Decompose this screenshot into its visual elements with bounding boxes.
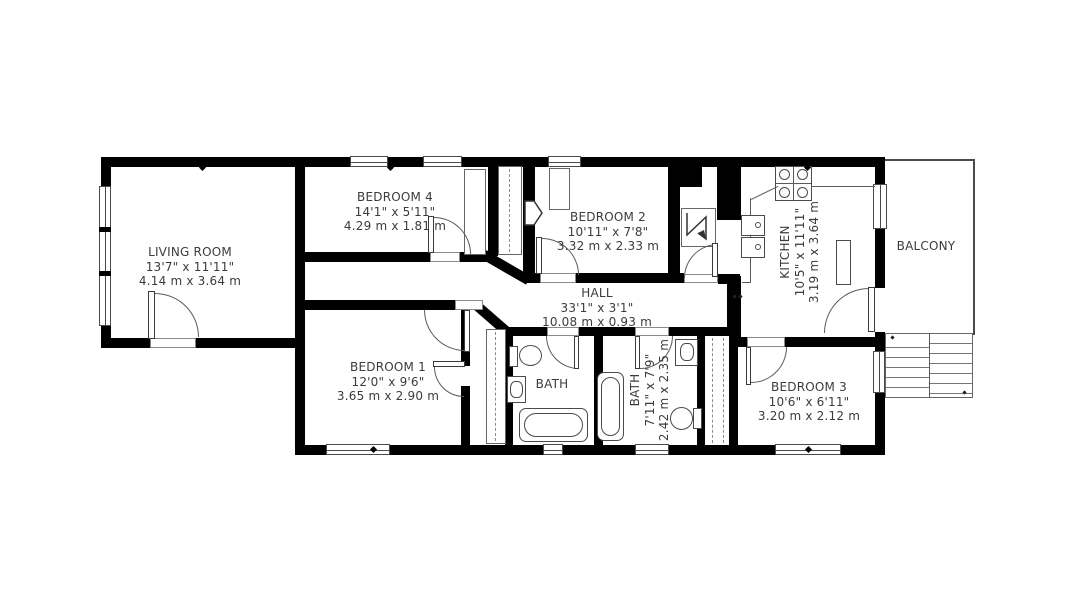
wall-segment [784,337,885,347]
window [548,156,581,167]
room-name: KITCHEN [778,197,793,307]
room-dims-metric: 3.65 m x 2.90 m [308,389,468,404]
room-dims-imperial: 12'0" x 9'6" [308,375,468,390]
room-label-kitchen: KITCHEN 10'5" x 11'11" 3.19 m x 3.64 m [778,197,824,307]
room-name: BALCONY [876,239,976,254]
room-label-hall: HALL 33'1" x 3'1" 10.08 m x 0.93 m [517,286,677,330]
room-dims-metric: 10.08 m x 0.93 m [517,315,677,330]
counter-edge [742,282,751,283]
door-opening [875,288,885,332]
door-leaf [868,287,875,332]
door-arc [751,347,787,383]
wall-segment [295,252,432,262]
window [350,156,388,167]
door-arc [155,293,199,337]
wall-segment [717,162,741,220]
room-dims-imperial: 13'7" x 11'11" [110,260,270,275]
stove-grid [776,183,811,184]
room-dims-imperial: 7'11" x 7'9" [643,335,658,445]
room-dims-imperial: 14'1" x 5'11" [315,205,475,220]
room-dims-imperial: 33'1" x 3'1" [517,301,677,316]
bathtub-basin [601,377,620,436]
kitchen-sink-fixture [741,215,765,236]
wall-segment [875,157,885,187]
wall-segment [680,163,702,187]
door-leaf [464,310,470,352]
room-label-bath-1: BATH [522,377,582,392]
door-leaf [574,336,579,369]
closet-hatch [495,332,496,441]
room-label-bath-2: BATH 7'11" x 7'9" 2.42 m x 2.35 m [628,335,672,445]
room-dims-imperial: 10'6" x 6'11" [729,395,889,410]
wardrobe [549,168,570,210]
door-leaf [712,243,718,277]
burner-icon [779,169,790,180]
room-label-living-room: LIVING ROOM 13'7" x 11'11" 4.14 m x 3.64… [110,245,270,289]
door-threshold [150,338,196,348]
room-name: BATH [522,377,582,392]
closet [486,329,506,444]
room-label-bedroom-2: BEDROOM 2 10'11" x 7'8" 3.32 m x 2.33 m [528,210,688,254]
closet [498,166,522,255]
hall-mark [738,294,742,298]
stair-divider [929,333,930,398]
room-dims-imperial: 10'11" x 7'8" [528,225,688,240]
closet-hatch [712,338,713,443]
room-name: LIVING ROOM [110,245,270,260]
room-dims-metric: 4.14 m x 3.64 m [110,274,270,289]
room-dims-metric: 3.20 m x 2.12 m [729,409,889,424]
window [635,444,669,455]
room-name: BEDROOM 1 [308,360,468,375]
door-threshold [455,300,483,310]
wall-segment [718,274,740,284]
wall-segment [875,331,885,347]
door-leaf [148,291,155,339]
toilet-fixture [519,345,542,366]
room-dims-metric: 4.29 m x 1.81 m [315,219,475,234]
room-dims-metric: 3.32 m x 2.33 m [528,239,688,254]
toilet-tank [509,346,518,367]
wall-segment [488,157,498,256]
window [543,444,563,455]
window [326,444,390,455]
stair-treads [930,334,972,396]
toilet-fixture [670,407,693,430]
window [423,156,462,167]
room-label-bedroom-3: BEDROOM 3 10'6" x 6'11" 3.20 m x 2.12 m [729,380,889,424]
counter-fixture [836,240,851,285]
window-divider [99,227,111,232]
room-name: BEDROOM 2 [528,210,688,225]
room-name: HALL [517,286,677,301]
wall-segment [875,226,885,290]
bathtub-basin [524,413,583,437]
closet-hatch [723,338,724,443]
room-dims-metric: 3.19 m x 3.64 m [807,197,822,307]
door-arc [824,288,869,333]
room-label-bedroom-4: BEDROOM 4 14'1" x 5'11" 4.29 m x 1.81 m [315,190,475,234]
stair-treads [886,338,929,396]
floor-plan: LIVING ROOM 13'7" x 11'11" 4.14 m x 3.64… [0,0,1080,592]
sink-drain [755,222,761,228]
room-name: BEDROOM 3 [729,380,889,395]
toilet-tank [693,408,702,429]
wall-segment [295,300,457,310]
closet-hatch [509,169,510,252]
wall-segment [101,338,305,348]
room-dims-metric: 2.42 m x 2.35 m [657,335,672,445]
closet [705,336,729,445]
wall-segment [727,276,741,337]
counter-edge [811,186,875,187]
kitchen-sink-fixture [741,237,765,258]
door-arc [424,310,465,351]
room-label-bedroom-1: BEDROOM 1 12'0" x 9'6" 3.65 m x 2.90 m [308,360,468,404]
room-name: BATH [628,335,643,445]
sink-drain [755,244,761,250]
room-name: BEDROOM 4 [315,190,475,205]
balcony-window [873,184,887,229]
room-label-balcony: BALCONY [876,239,976,254]
door-threshold [747,337,785,347]
sink-basin [680,343,694,361]
room-dims-imperial: 10'5" x 11'11" [793,197,808,307]
